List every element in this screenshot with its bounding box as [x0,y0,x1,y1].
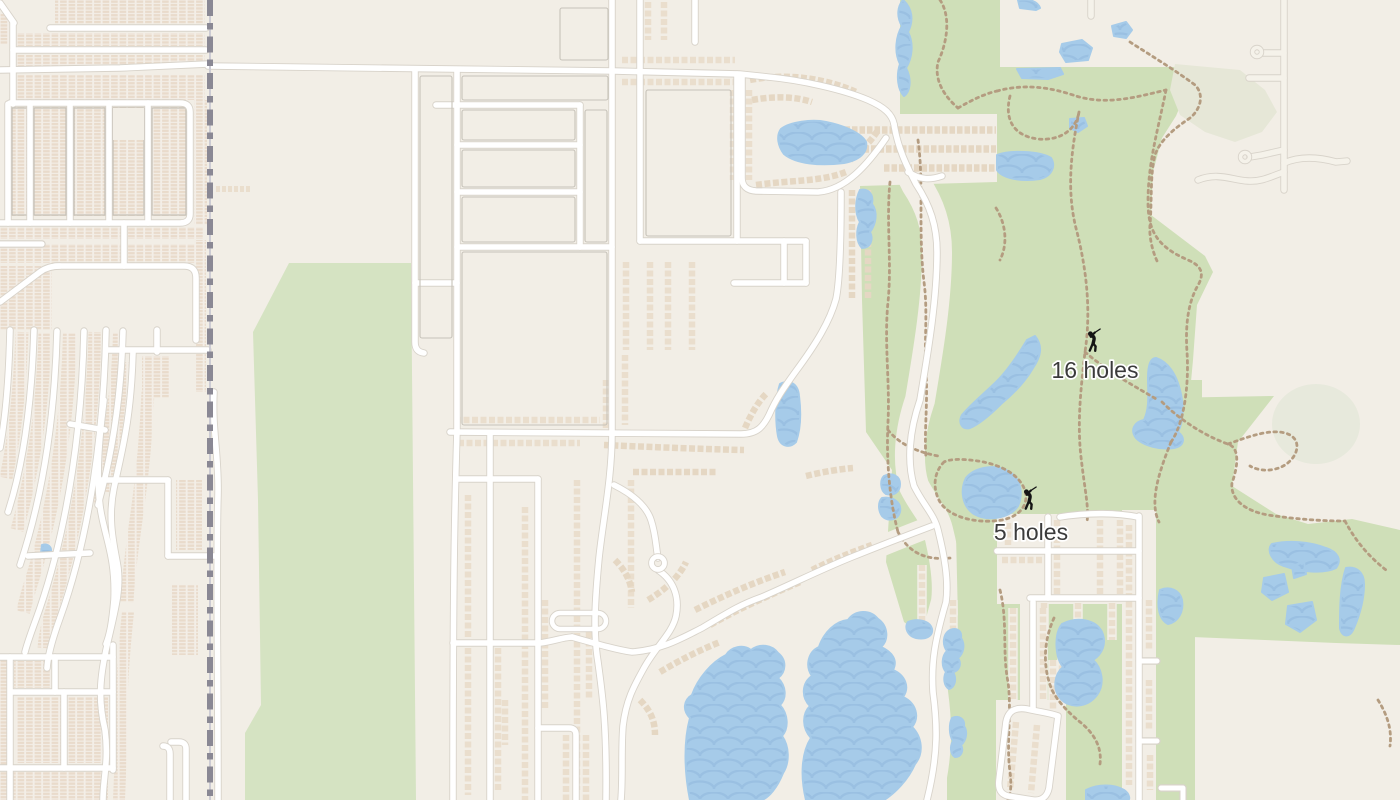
svg-text:16 holes: 16 holes [1052,357,1139,383]
svg-text:5 holes: 5 holes [994,519,1068,545]
